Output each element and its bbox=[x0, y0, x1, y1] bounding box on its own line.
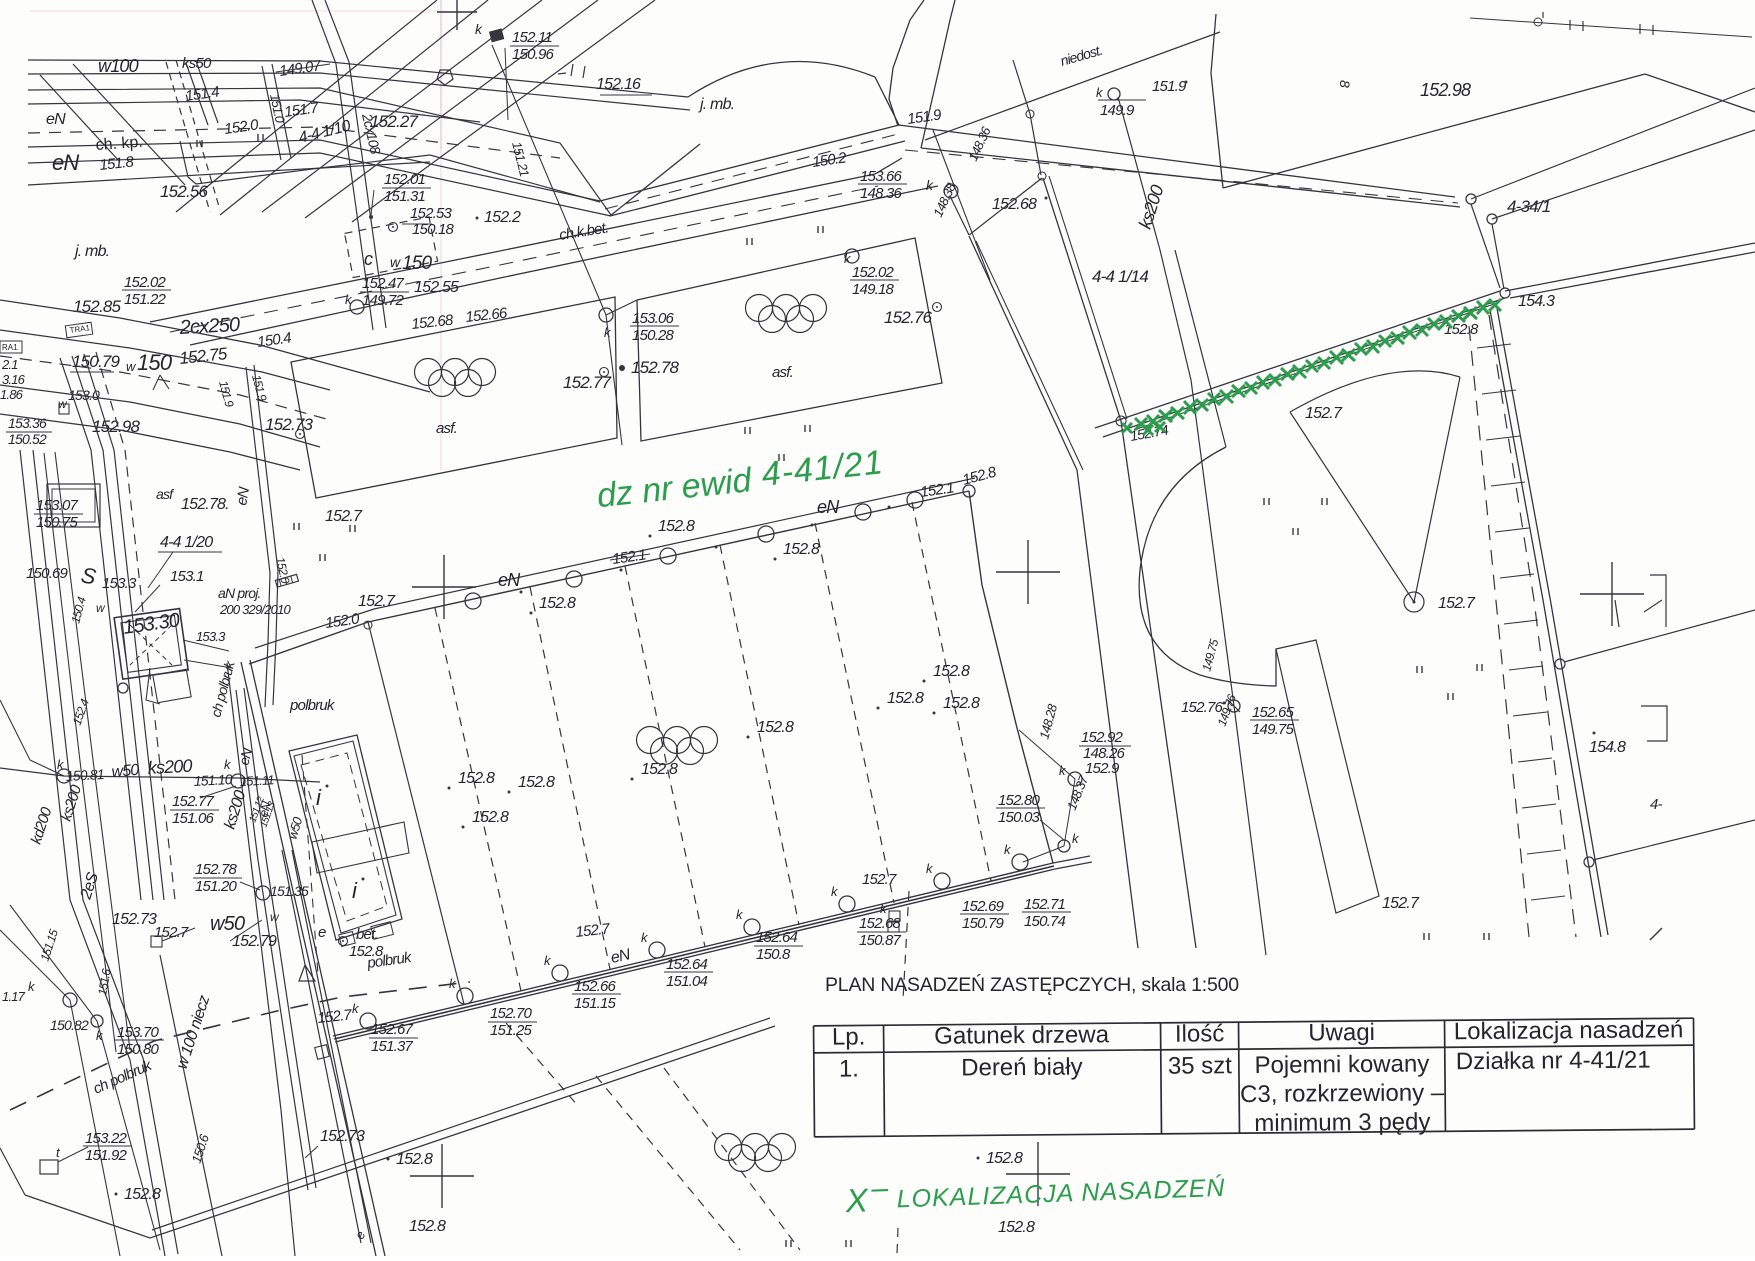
svg-text:150.8: 150.8 bbox=[756, 946, 791, 963]
svg-text:asf.: asf. bbox=[436, 420, 457, 437]
svg-text:4-: 4- bbox=[1650, 796, 1663, 813]
svg-text:153.22: 153.22 bbox=[85, 1130, 128, 1147]
svg-text:150.82: 150.82 bbox=[50, 1017, 89, 1033]
svg-text:eN: eN bbox=[817, 497, 840, 517]
svg-text:150.74: 150.74 bbox=[1024, 913, 1066, 930]
svg-text:153.06: 153.06 bbox=[632, 310, 675, 327]
svg-text:w50: w50 bbox=[210, 913, 245, 935]
svg-text:3.16: 3.16 bbox=[2, 372, 26, 387]
svg-text:151.92: 151.92 bbox=[85, 1147, 128, 1164]
svg-text:Gatunek drzewa: Gatunek drzewa bbox=[934, 1021, 1110, 1050]
svg-text:149.18: 149.18 bbox=[852, 281, 895, 298]
svg-text:152.67: 152.67 bbox=[371, 1021, 414, 1038]
svg-text:2.1: 2.1 bbox=[1, 357, 18, 372]
svg-text:C3, rozkrzewiony –: C3, rozkrzewiony – bbox=[1240, 1079, 1445, 1108]
svg-text:152.68: 152.68 bbox=[859, 915, 902, 932]
svg-text:152.66: 152.66 bbox=[574, 978, 617, 995]
svg-text:150.81: 150.81 bbox=[65, 766, 104, 784]
svg-text:151.06: 151.06 bbox=[172, 810, 215, 827]
svg-text:152.76: 152.76 bbox=[1181, 699, 1224, 716]
svg-text:152.7: 152.7 bbox=[1305, 405, 1343, 422]
svg-text:Ilość: Ilość bbox=[1175, 1020, 1225, 1047]
svg-text:152.8: 152.8 bbox=[396, 1151, 433, 1168]
svg-text:153.3: 153.3 bbox=[196, 629, 226, 644]
svg-text:152.7: 152.7 bbox=[325, 508, 363, 525]
svg-text:151.35: 151.35 bbox=[270, 883, 309, 899]
svg-text:152.47: 152.47 bbox=[362, 275, 405, 292]
svg-text:X: X bbox=[844, 1181, 870, 1219]
svg-text:152.56: 152.56 bbox=[160, 182, 209, 201]
svg-text:152.8: 152.8 bbox=[757, 719, 794, 736]
svg-text:152.2: 152.2 bbox=[484, 209, 521, 226]
svg-text:150.87: 150.87 bbox=[859, 932, 902, 949]
svg-text:152.8: 152.8 bbox=[472, 809, 509, 826]
svg-text:152.78: 152.78 bbox=[631, 358, 680, 377]
svg-text:aN proj.: aN proj. bbox=[218, 585, 261, 601]
svg-text:150.96: 150.96 bbox=[512, 46, 555, 63]
svg-text:152.7: 152.7 bbox=[575, 920, 612, 941]
svg-text:153.66: 153.66 bbox=[860, 168, 903, 185]
svg-text:152.78: 152.78 bbox=[195, 861, 238, 878]
svg-text:151.9: 151.9 bbox=[1152, 78, 1187, 95]
svg-text:152.7: 152.7 bbox=[358, 593, 396, 610]
svg-text:asf.: asf. bbox=[772, 364, 793, 381]
svg-text:151.25: 151.25 bbox=[490, 1022, 533, 1039]
svg-text:148.36: 148.36 bbox=[860, 185, 903, 202]
svg-text:bet.: bet. bbox=[356, 926, 378, 943]
svg-text:152.8: 152.8 bbox=[933, 663, 970, 680]
svg-text:eN: eN bbox=[46, 111, 66, 128]
svg-text:4-4 1/20: 4-4 1/20 bbox=[160, 534, 213, 551]
svg-text:153.70: 153.70 bbox=[117, 1024, 160, 1041]
svg-text:149.75: 149.75 bbox=[1252, 721, 1295, 738]
svg-text:w100: w100 bbox=[98, 56, 139, 76]
svg-text:Dereń biały: Dereń biały bbox=[961, 1053, 1083, 1081]
svg-text:200 329/2010: 200 329/2010 bbox=[219, 602, 291, 617]
svg-text:152.73: 152.73 bbox=[112, 911, 157, 928]
svg-text:152.65: 152.65 bbox=[1252, 704, 1295, 721]
svg-text:ks200: ks200 bbox=[147, 756, 193, 778]
svg-text:–: – bbox=[870, 1172, 889, 1206]
svg-text:151.37: 151.37 bbox=[371, 1038, 414, 1055]
svg-text:j. mb.: j. mb. bbox=[698, 96, 734, 113]
svg-text:e: e bbox=[318, 924, 326, 941]
svg-text:149.72: 149.72 bbox=[362, 292, 405, 309]
svg-text:152.85: 152.85 bbox=[73, 297, 122, 316]
svg-text:150.79: 150.79 bbox=[962, 915, 1005, 932]
svg-text:152.9: 152.9 bbox=[1085, 760, 1120, 777]
svg-text:154.8: 154.8 bbox=[1589, 739, 1626, 756]
svg-text:152.53: 152.53 bbox=[410, 205, 453, 222]
svg-text:152.01: 152.01 bbox=[384, 171, 426, 188]
svg-text:151.22: 151.22 bbox=[124, 291, 167, 308]
svg-text:151.8: 151.8 bbox=[99, 153, 136, 174]
svg-text:151.04: 151.04 bbox=[666, 973, 708, 990]
svg-text:152.77: 152.77 bbox=[563, 373, 612, 392]
svg-text:152.7: 152.7 bbox=[862, 871, 897, 888]
svg-text:152.16: 152.16 bbox=[596, 76, 641, 93]
svg-text:152.8: 152.8 bbox=[124, 1186, 161, 1203]
svg-text:152.8: 152.8 bbox=[658, 518, 695, 535]
svg-text:149.9: 149.9 bbox=[1100, 102, 1135, 119]
svg-text:152.64: 152.64 bbox=[756, 929, 798, 946]
svg-text:PLAN NASADZEŃ ZASTĘPCZYCH, ska: PLAN NASADZEŃ ZASTĘPCZYCH, skala 1:500 bbox=[825, 973, 1239, 996]
svg-text:151.11: 151.11 bbox=[239, 772, 274, 789]
svg-text:c: c bbox=[364, 249, 373, 269]
svg-text:150: 150 bbox=[137, 350, 173, 375]
svg-text:152.71: 152.71 bbox=[1024, 896, 1066, 913]
svg-text:35 szt: 35 szt bbox=[1168, 1052, 1233, 1080]
svg-text:152.64: 152.64 bbox=[666, 956, 708, 973]
svg-text:Lokalizacja nasadzeń: Lokalizacja nasadzeń bbox=[1454, 1016, 1684, 1045]
svg-text:150.52: 150.52 bbox=[8, 431, 47, 447]
svg-text:1.86: 1.86 bbox=[0, 387, 24, 402]
svg-text:4-4 1/14: 4-4 1/14 bbox=[1092, 267, 1148, 286]
svg-text:polbruk: polbruk bbox=[289, 697, 336, 714]
svg-text:ch. kp.: ch. kp. bbox=[95, 134, 143, 154]
svg-text:ks50: ks50 bbox=[182, 55, 212, 72]
svg-text:152.55: 152.55 bbox=[414, 279, 459, 296]
svg-text:151.10: 151.10 bbox=[193, 771, 233, 789]
svg-text:152.8: 152.8 bbox=[986, 1150, 1023, 1167]
svg-text:152.80: 152.80 bbox=[998, 792, 1041, 809]
svg-text:152.8: 152.8 bbox=[458, 770, 495, 787]
svg-text:152.92: 152.92 bbox=[1081, 729, 1124, 746]
svg-text:152.76: 152.76 bbox=[884, 308, 933, 327]
svg-text:152.8: 152.8 bbox=[887, 690, 924, 707]
svg-text:eN: eN bbox=[52, 150, 79, 175]
svg-text:152.8: 152.8 bbox=[539, 595, 576, 612]
svg-text:152.73: 152.73 bbox=[320, 1128, 365, 1145]
svg-text:minimum 3 pędy: minimum 3 pędy bbox=[1254, 1108, 1430, 1137]
svg-text:152.11: 152.11 bbox=[512, 29, 552, 46]
svg-text:150.28: 150.28 bbox=[632, 327, 675, 344]
svg-text:150: 150 bbox=[402, 253, 433, 274]
svg-text:153.07: 153.07 bbox=[36, 497, 79, 514]
svg-text:1.17: 1.17 bbox=[2, 989, 26, 1004]
svg-text:Uwagi: Uwagi bbox=[1308, 1019, 1375, 1047]
svg-text:152.69: 152.69 bbox=[962, 898, 1005, 915]
svg-text:151.15: 151.15 bbox=[574, 995, 617, 1012]
svg-text:152.02: 152.02 bbox=[852, 264, 895, 281]
svg-text:152.73: 152.73 bbox=[265, 415, 314, 434]
svg-text:153.3: 153.3 bbox=[102, 575, 137, 592]
svg-text:Pojemni kowany: Pojemni kowany bbox=[1254, 1050, 1429, 1079]
svg-text:Działka nr 4-41/21: Działka nr 4-41/21 bbox=[1456, 1047, 1651, 1076]
svg-text:152.78.: 152.78. bbox=[181, 496, 229, 513]
svg-text:152.7: 152.7 bbox=[317, 1006, 354, 1027]
svg-text:150.03: 150.03 bbox=[998, 809, 1041, 826]
svg-text:153.1: 153.1 bbox=[170, 568, 204, 585]
svg-text:151.31: 151.31 bbox=[384, 188, 426, 205]
svg-text:152.8: 152.8 bbox=[998, 1219, 1035, 1236]
svg-text:RA1: RA1 bbox=[2, 343, 18, 352]
svg-text:152.68: 152.68 bbox=[992, 196, 1037, 213]
svg-text:152.8: 152.8 bbox=[943, 695, 980, 712]
svg-text:152.98: 152.98 bbox=[1420, 80, 1471, 100]
svg-text:Lp.: Lp. bbox=[832, 1023, 866, 1050]
svg-text:152.8: 152.8 bbox=[783, 541, 820, 558]
svg-text:152.02: 152.02 bbox=[124, 274, 167, 291]
svg-text:1.: 1. bbox=[839, 1055, 859, 1082]
svg-text:eN: eN bbox=[498, 570, 521, 590]
svg-text:w50: w50 bbox=[111, 762, 140, 781]
svg-text:152.70: 152.70 bbox=[490, 1005, 533, 1022]
svg-text:152.8: 152.8 bbox=[518, 774, 555, 791]
svg-text:152.8: 152.8 bbox=[409, 1218, 446, 1235]
svg-text:j. mb.: j. mb. bbox=[73, 243, 109, 260]
svg-text:8: 8 bbox=[1337, 80, 1353, 88]
svg-text:151.20: 151.20 bbox=[195, 878, 238, 895]
svg-text:152.7: 152.7 bbox=[1438, 595, 1476, 612]
svg-text:152.7: 152.7 bbox=[1382, 895, 1420, 912]
